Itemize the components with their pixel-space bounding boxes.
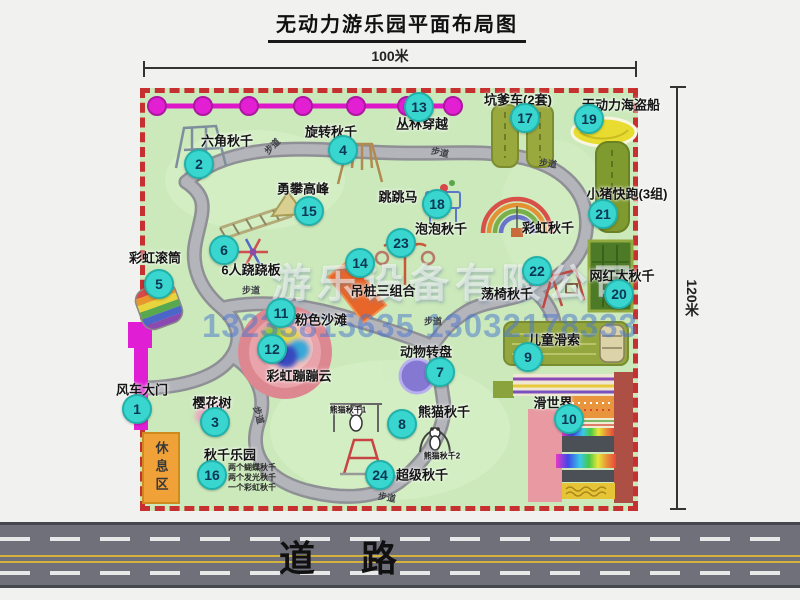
- height-dimension-label: 120米: [682, 279, 702, 316]
- attraction-badge-14: 14: [345, 248, 375, 278]
- extra-label: 熊猫秋千1: [330, 405, 366, 416]
- attraction-label-18: 跳跳马: [378, 187, 417, 206]
- attraction-badge-18: 18: [422, 189, 452, 219]
- attraction-badge-3: 3: [200, 407, 230, 437]
- attraction-badge-20: 20: [604, 279, 634, 309]
- height-dimension-line: [676, 86, 678, 510]
- attraction-badge-5: 5: [144, 269, 174, 299]
- walkway-label: 步道: [424, 315, 442, 328]
- rest-area: 休息区: [142, 432, 180, 504]
- park-layout-plan: 无动力游乐园平面布局图 100米 120米: [0, 0, 800, 600]
- attraction-badge-23: 23: [386, 228, 416, 258]
- road: 道 路: [0, 522, 800, 588]
- swing-park-note-line: 两个发光秋千: [228, 473, 276, 483]
- attraction-label-22: 荡椅秋千: [481, 284, 533, 303]
- attraction-badge-17: 17: [510, 103, 540, 133]
- extra-label: 彩虹秋千: [522, 218, 574, 237]
- attraction-label-5: 彩虹滚筒: [129, 248, 181, 267]
- swing-park-note-line: 一个彩虹秋千: [228, 483, 276, 493]
- attraction-label-24: 超级秋千: [396, 465, 448, 484]
- attraction-badge-10: 10: [554, 404, 584, 434]
- attraction-badge-8: 8: [387, 409, 417, 439]
- attraction-label-23: 泡泡秋千: [415, 219, 467, 238]
- attraction-badge-4: 4: [328, 135, 358, 165]
- attraction-badge-6: 6: [209, 235, 239, 265]
- attraction-badge-2: 2: [184, 149, 214, 179]
- attraction-badge-9: 9: [513, 342, 543, 372]
- walkway-label: 步道: [538, 155, 558, 170]
- attraction-label-12: 彩虹蹦蹦云: [266, 366, 331, 385]
- attraction-label-8: 熊猫秋千: [418, 402, 470, 421]
- attraction-badge-13: 13: [404, 92, 434, 122]
- attraction-label-14: 吊桩三组合: [350, 281, 415, 300]
- attraction-badge-16: 16: [197, 460, 227, 490]
- watermark-company: 游乐设备有限公司: [271, 251, 639, 309]
- attraction-badge-1: 1: [122, 394, 152, 424]
- swing-park-notes: 两个蝴蝶秋千两个发光秋千一个彩虹秋千: [228, 463, 276, 493]
- width-dimension-label: 100米: [371, 46, 408, 66]
- attraction-badge-15: 15: [294, 196, 324, 226]
- swing-park-note-line: 两个蝴蝶秋千: [228, 463, 276, 473]
- attraction-badge-22: 22: [522, 256, 552, 286]
- road-label: 道 路: [279, 530, 401, 582]
- attraction-label-2: 六角秋千: [201, 131, 253, 150]
- walkway-label: 步道: [242, 284, 260, 297]
- attraction-label-15: 勇攀高峰: [277, 179, 329, 198]
- width-dimension-line: [143, 67, 637, 69]
- attraction-badge-11: 11: [266, 298, 296, 328]
- attraction-badge-7: 7: [425, 357, 455, 387]
- page-title: 无动力游乐园平面布局图: [268, 8, 526, 43]
- attraction-badge-19: 19: [574, 104, 604, 134]
- attraction-badge-12: 12: [257, 334, 287, 364]
- attraction-badge-21: 21: [588, 199, 618, 229]
- attraction-label-11: 粉色沙滩: [295, 310, 347, 329]
- extra-label: 熊猫秋千2: [424, 451, 460, 462]
- attraction-badge-24: 24: [365, 460, 395, 490]
